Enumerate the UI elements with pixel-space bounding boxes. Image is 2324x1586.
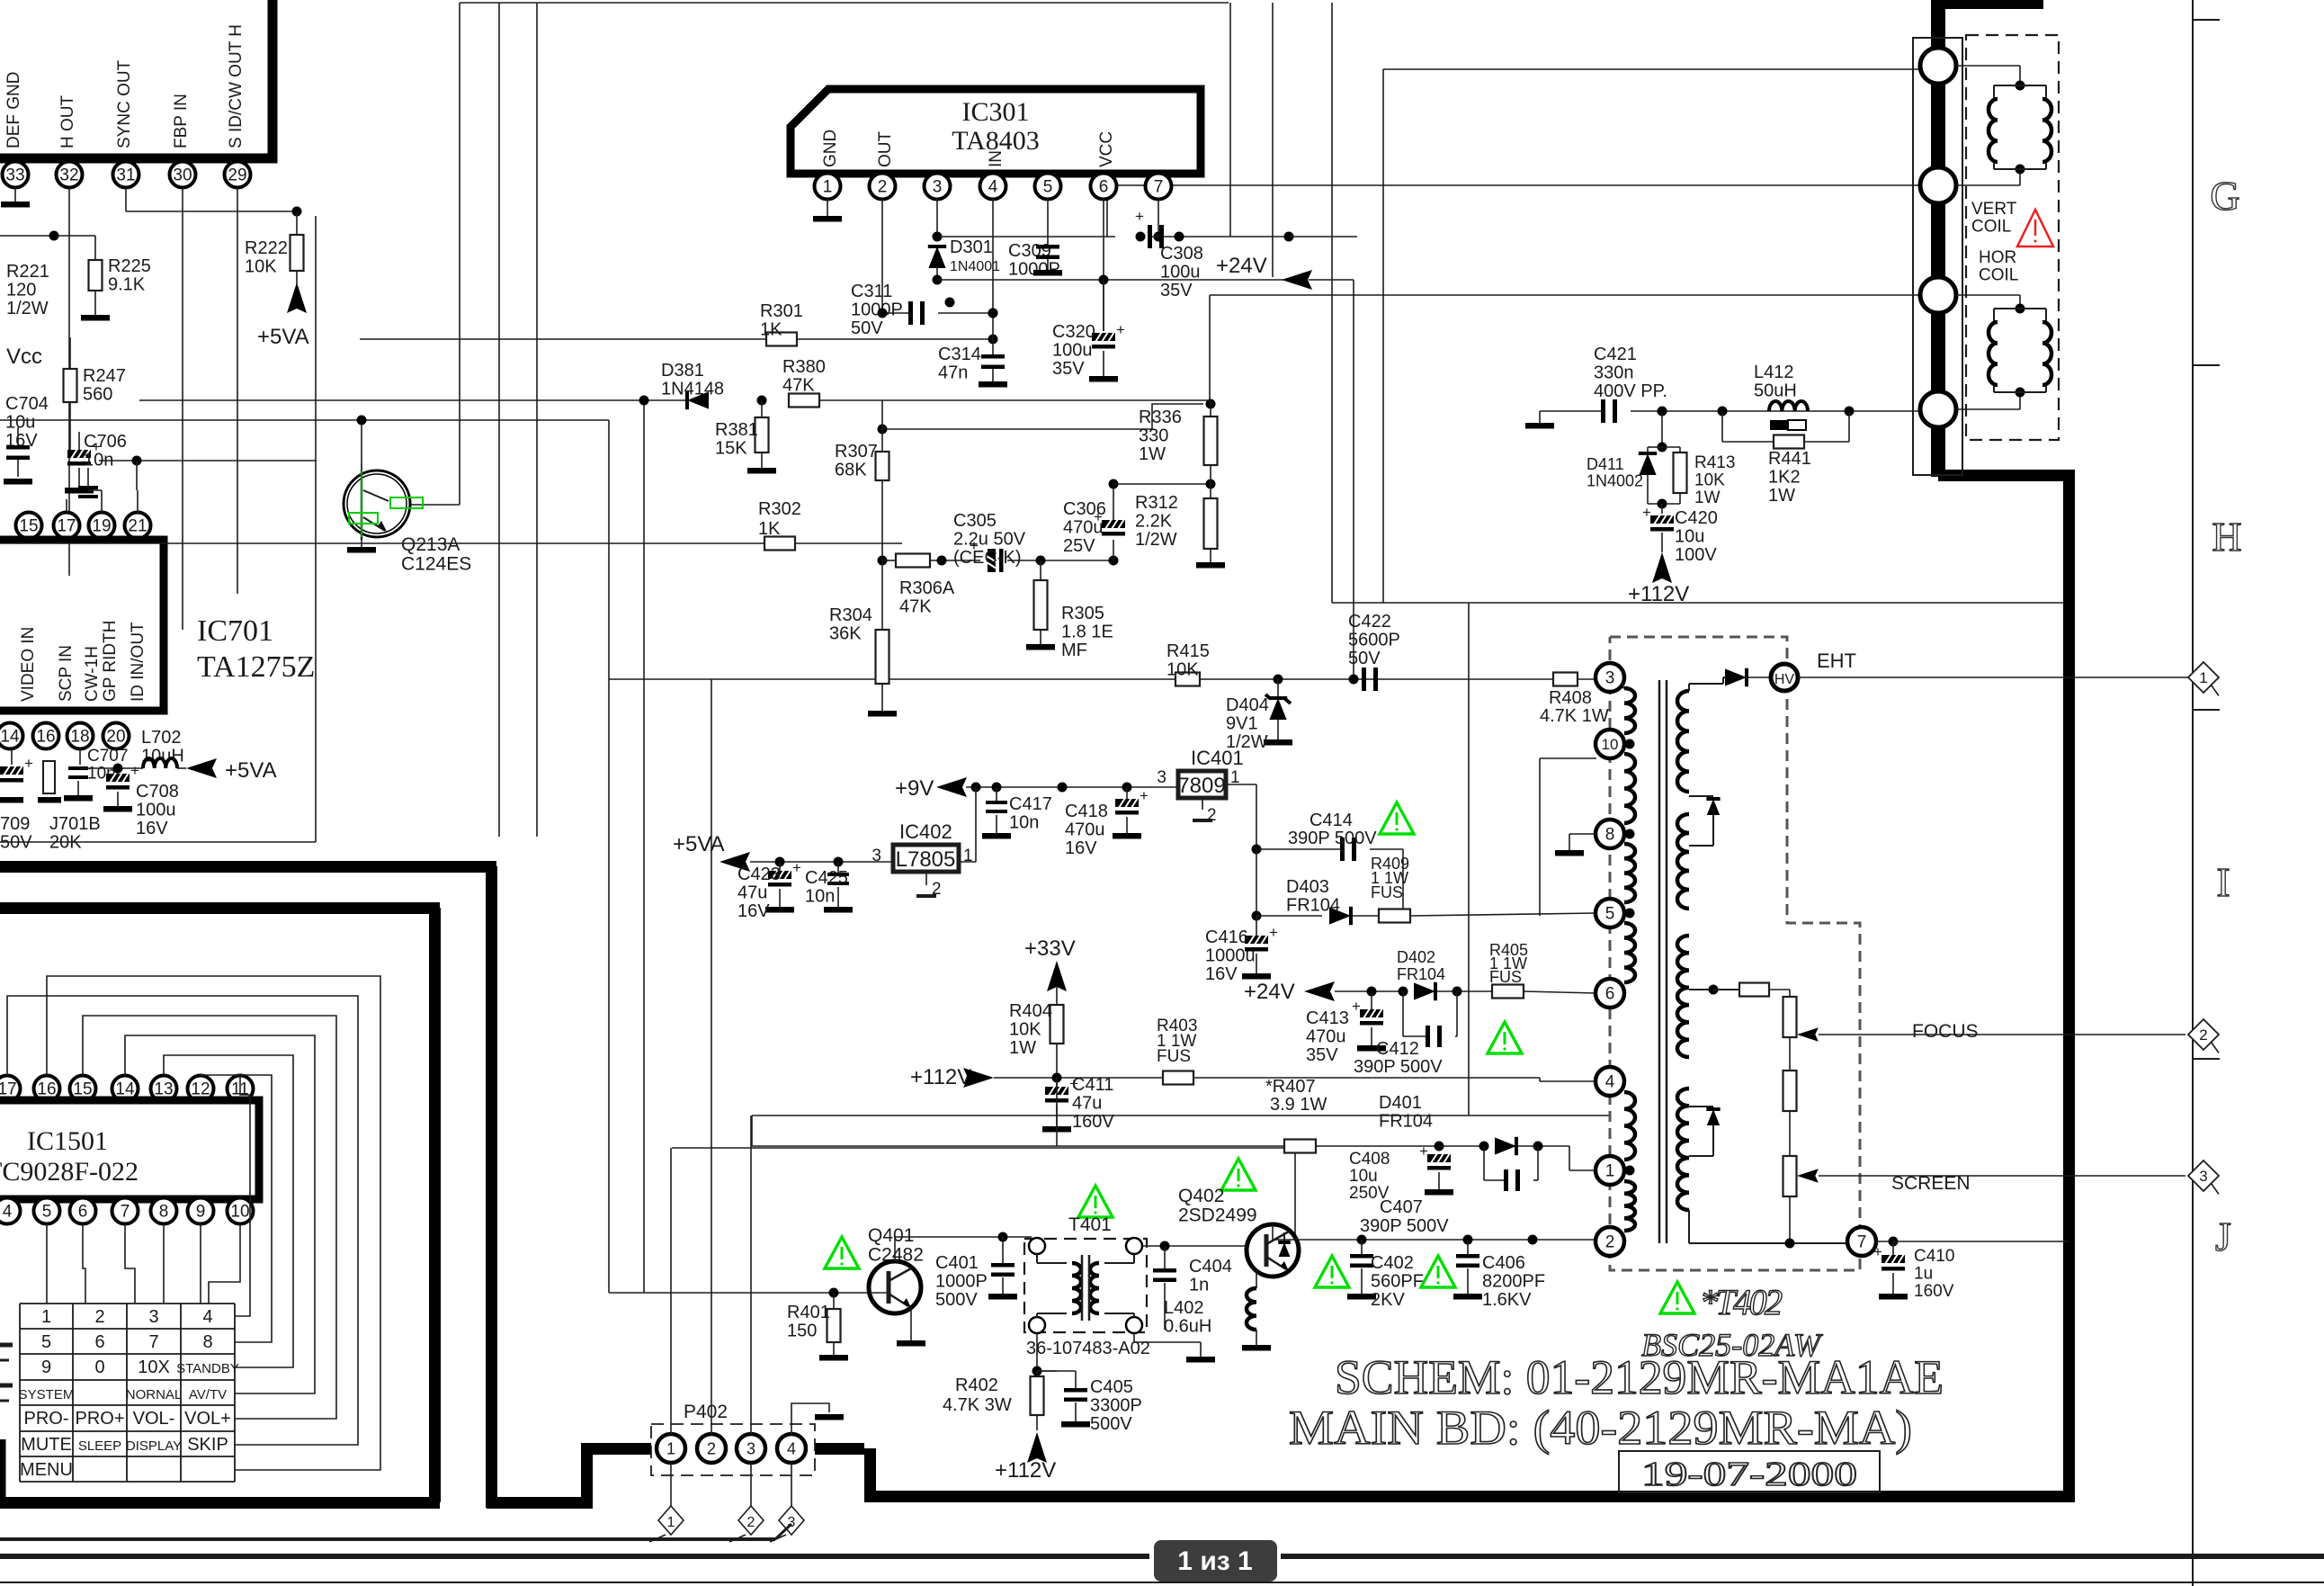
svg-text:7: 7	[1154, 178, 1164, 197]
svg-text:29: 29	[228, 166, 246, 185]
svg-text:+5VA: +5VA	[673, 832, 725, 856]
svg-text:R301: R301	[760, 301, 803, 321]
svg-text:R306A: R306A	[899, 578, 955, 598]
svg-text:C707: C707	[87, 747, 128, 766]
svg-text:16: 16	[36, 728, 55, 747]
svg-text:R225: R225	[108, 256, 151, 276]
svg-text:SYSTEM: SYSTEM	[19, 1387, 75, 1402]
svg-text:36K: 36K	[829, 623, 862, 643]
svg-text:160V: 160V	[1072, 1112, 1114, 1132]
svg-text:R304: R304	[829, 605, 872, 625]
svg-text:8200PF: 8200PF	[1482, 1271, 1545, 1291]
svg-text:D381: D381	[661, 361, 704, 381]
svg-text:1000P: 1000P	[1008, 259, 1060, 279]
svg-text:4: 4	[988, 178, 998, 197]
svg-text:150: 150	[787, 1321, 817, 1340]
svg-text:8: 8	[1605, 826, 1615, 845]
svg-text:68K: 68K	[835, 460, 867, 479]
svg-text:470u: 470u	[1306, 1026, 1346, 1046]
svg-text:330: 330	[1139, 426, 1168, 445]
svg-text:1N4148: 1N4148	[661, 379, 724, 399]
svg-text:47u: 47u	[737, 883, 767, 902]
svg-text:14: 14	[0, 728, 20, 747]
svg-text:C308: C308	[1160, 244, 1203, 264]
svg-text:R307: R307	[835, 442, 878, 461]
svg-text:3: 3	[933, 178, 943, 197]
svg-text:C708: C708	[136, 782, 179, 802]
svg-text:C405: C405	[1090, 1377, 1133, 1397]
svg-text:390P 500V: 390P 500V	[1360, 1216, 1449, 1236]
svg-text:FR104: FR104	[1397, 965, 1445, 983]
svg-text:R221: R221	[6, 262, 49, 282]
svg-text:3: 3	[788, 1515, 796, 1530]
svg-text:+33V: +33V	[1024, 936, 1076, 961]
svg-text:IC402: IC402	[899, 820, 952, 843]
svg-text:DEF GND: DEF GND	[4, 72, 23, 149]
svg-text:FR104: FR104	[1379, 1111, 1433, 1131]
svg-text:4: 4	[1605, 1073, 1615, 1092]
svg-text:PRO+: PRO+	[75, 1409, 124, 1429]
svg-text:IN: IN	[987, 150, 1006, 167]
svg-text:R302: R302	[758, 499, 801, 519]
svg-text:Vcc: Vcc	[6, 345, 42, 369]
svg-text:330n: 330n	[1594, 363, 1634, 382]
svg-text:Q401: Q401	[868, 1225, 914, 1246]
svg-text:4.7K 3W: 4.7K 3W	[943, 1395, 1012, 1415]
svg-text:390P 500V: 390P 500V	[1354, 1057, 1443, 1077]
svg-text:1000P: 1000P	[851, 300, 903, 319]
svg-text:7809: 7809	[1177, 774, 1225, 798]
svg-text:10u: 10u	[1675, 526, 1704, 546]
svg-text:CW-1H: CW-1H	[83, 646, 102, 702]
svg-text:EHT: EHT	[1817, 650, 1856, 672]
svg-text:5: 5	[1605, 905, 1615, 924]
svg-text:10X: 10X	[138, 1358, 170, 1377]
svg-text:19: 19	[92, 517, 111, 536]
svg-text:390P 500V: 390P 500V	[1288, 829, 1377, 848]
svg-text:2.2u 50V: 2.2u 50V	[953, 529, 1026, 549]
svg-text:VCC: VCC	[1097, 131, 1116, 167]
svg-text:C406: C406	[1482, 1253, 1525, 1273]
svg-text:470u: 470u	[1065, 820, 1105, 839]
svg-text:R381: R381	[715, 420, 758, 440]
svg-text:500V: 500V	[1090, 1414, 1132, 1434]
svg-text:47n: 47n	[938, 363, 968, 382]
svg-text:NORNAL: NORNAL	[126, 1387, 183, 1402]
svg-text:1K2: 1K2	[1768, 467, 1801, 487]
svg-text:VOL-: VOL-	[133, 1409, 175, 1429]
svg-text:R402: R402	[955, 1375, 998, 1395]
svg-text:1: 1	[666, 1439, 675, 1457]
svg-text:10n: 10n	[1009, 812, 1039, 832]
svg-text:1K: 1K	[760, 319, 782, 339]
svg-text:7: 7	[121, 1203, 130, 1222]
svg-text:1000u: 1000u	[1205, 945, 1256, 965]
svg-text:400V PP.: 400V PP.	[1594, 381, 1667, 401]
svg-text:I: I	[2216, 859, 2230, 905]
svg-text:50V: 50V	[0, 832, 32, 852]
svg-text:VERT: VERT	[1971, 200, 2017, 219]
svg-text:5600P: 5600P	[1348, 630, 1400, 650]
svg-text:FR104: FR104	[1286, 895, 1340, 915]
svg-text:35V: 35V	[1306, 1045, 1338, 1065]
svg-text:R408: R408	[1549, 688, 1592, 708]
svg-text:9.1K: 9.1K	[108, 274, 146, 294]
svg-text:D401: D401	[1379, 1093, 1422, 1113]
svg-text:100V: 100V	[1675, 545, 1717, 565]
svg-text:OUT: OUT	[876, 131, 895, 168]
svg-text:1W: 1W	[1009, 1038, 1036, 1058]
svg-text:C404: C404	[1189, 1257, 1232, 1277]
svg-text:1.8 1E: 1.8 1E	[1061, 622, 1113, 641]
svg-text:6: 6	[94, 1332, 104, 1352]
svg-text:R441: R441	[1768, 449, 1811, 469]
svg-text:470u: 470u	[1063, 517, 1104, 537]
svg-text:C425: C425	[805, 868, 848, 888]
svg-text:+24V: +24V	[1244, 980, 1295, 1004]
svg-text:16V: 16V	[1205, 964, 1238, 984]
svg-text:19-07-2000: 19-07-2000	[1641, 1456, 1857, 1493]
svg-text:+112V: +112V	[910, 1065, 971, 1089]
svg-text:FUS: FUS	[1157, 1047, 1191, 1066]
svg-text:C407: C407	[1380, 1197, 1423, 1217]
svg-text:G: G	[2210, 173, 2239, 219]
svg-text:C704: C704	[5, 394, 49, 414]
svg-text:1N4002: 1N4002	[1587, 471, 1643, 489]
svg-text:1: 1	[823, 178, 833, 197]
svg-text:D411: D411	[1587, 455, 1624, 473]
svg-text:MENU: MENU	[20, 1460, 73, 1480]
svg-text:J701B: J701B	[49, 814, 101, 834]
svg-text:+: +	[130, 762, 139, 779]
svg-text:2: 2	[878, 178, 888, 197]
svg-text:10: 10	[1602, 736, 1619, 753]
svg-text:+5VA: +5VA	[257, 325, 309, 349]
svg-text:5: 5	[42, 1203, 52, 1222]
svg-text:FBP IN: FBP IN	[172, 94, 191, 148]
svg-text:3: 3	[2199, 1168, 2207, 1185]
svg-text:6: 6	[78, 1203, 88, 1222]
svg-text:Q402: Q402	[1178, 1186, 1224, 1206]
svg-text:C124ES: C124ES	[401, 553, 471, 574]
svg-text:17: 17	[57, 517, 76, 536]
svg-text:9V1: 9V1	[1226, 713, 1258, 733]
svg-text:3.9 1W: 3.9 1W	[1270, 1095, 1327, 1115]
svg-text:C402: C402	[1371, 1253, 1414, 1273]
svg-text:1.6KV: 1.6KV	[1482, 1290, 1532, 1310]
svg-text:560: 560	[83, 384, 112, 404]
svg-text:C422: C422	[1348, 612, 1391, 632]
svg-text:4: 4	[202, 1307, 212, 1327]
svg-text:120: 120	[6, 280, 36, 300]
svg-text:Q213A: Q213A	[401, 534, 460, 555]
svg-text:1: 1	[667, 1515, 675, 1530]
svg-text:47K: 47K	[899, 596, 932, 616]
svg-text:+5VA: +5VA	[225, 758, 277, 783]
svg-text:+: +	[1642, 504, 1651, 521]
svg-text:35V: 35V	[1052, 359, 1085, 379]
svg-text:VOL+: VOL+	[184, 1409, 231, 1429]
svg-text:L7805: L7805	[896, 847, 956, 872]
svg-text:1W: 1W	[1139, 444, 1166, 464]
svg-text:1: 1	[1605, 1162, 1615, 1181]
svg-text:32: 32	[59, 166, 78, 185]
svg-text:C421: C421	[1594, 345, 1637, 364]
svg-text:C417: C417	[1009, 794, 1052, 814]
svg-text:+: +	[1873, 1243, 1882, 1260]
svg-text:+: +	[1135, 208, 1144, 225]
svg-text:STANDBY: STANDBY	[176, 1361, 239, 1376]
svg-text:4: 4	[787, 1439, 796, 1457]
svg-text:25V: 25V	[1063, 536, 1095, 556]
svg-text:C408: C408	[1349, 1150, 1390, 1169]
svg-text:50uH: 50uH	[1754, 381, 1797, 400]
svg-text:4.7K 1W: 4.7K 1W	[1540, 706, 1609, 726]
svg-text:20: 20	[106, 728, 125, 747]
svg-text:C314: C314	[938, 345, 981, 364]
svg-text:COIL: COIL	[1971, 217, 2011, 236]
svg-text:R401: R401	[787, 1303, 830, 1322]
svg-text:C416: C416	[1205, 927, 1248, 947]
svg-text:IC401: IC401	[1191, 747, 1244, 769]
svg-text:1 из 1: 1 из 1	[1177, 1546, 1252, 1576]
svg-text:C320: C320	[1052, 322, 1095, 342]
svg-text:MAIN BD: (40-2129MR-MA): MAIN BD: (40-2129MR-MA)	[1289, 1401, 1912, 1455]
svg-text:1n: 1n	[1189, 1275, 1209, 1295]
svg-text:GND: GND	[821, 130, 840, 167]
svg-text:SYNC OUT: SYNC OUT	[115, 59, 134, 148]
svg-text:33: 33	[5, 166, 24, 185]
svg-text:8: 8	[202, 1332, 212, 1352]
svg-text:+: +	[792, 859, 801, 876]
svg-text:3: 3	[1605, 669, 1615, 688]
svg-text:10K: 10K	[1166, 659, 1199, 679]
svg-text:R404: R404	[1009, 1001, 1052, 1021]
svg-text:1000P: 1000P	[935, 1271, 988, 1291]
svg-text:SCREEN: SCREEN	[1891, 1173, 1971, 1194]
svg-text:C412: C412	[1376, 1039, 1419, 1059]
svg-text:(CEC-K): (CEC-K)	[953, 548, 1022, 568]
svg-text:FOCUS: FOCUS	[1912, 1021, 1979, 1042]
svg-text:10K: 10K	[1009, 1019, 1041, 1039]
svg-text:100u: 100u	[1052, 340, 1093, 360]
svg-text:R222: R222	[245, 238, 288, 258]
svg-text:SCP IN: SCP IN	[57, 645, 76, 702]
svg-text:560PF: 560PF	[1371, 1271, 1424, 1291]
svg-text:6: 6	[1099, 178, 1109, 197]
svg-text:L412: L412	[1754, 363, 1794, 382]
svg-text:10u: 10u	[1349, 1167, 1378, 1186]
svg-text:+: +	[1116, 321, 1125, 338]
svg-text:C311: C311	[851, 282, 892, 301]
svg-text:+24V: +24V	[1216, 254, 1267, 278]
svg-text:15: 15	[19, 517, 38, 536]
svg-text:3: 3	[1157, 768, 1166, 787]
svg-text:PRO-: PRO-	[24, 1409, 69, 1429]
svg-text:50V: 50V	[1348, 649, 1381, 668]
svg-text:709: 709	[0, 814, 30, 834]
svg-text:18: 18	[70, 728, 89, 747]
svg-text:+: +	[1140, 787, 1149, 804]
svg-text:16V: 16V	[136, 819, 168, 838]
svg-text:4: 4	[3, 1203, 13, 1222]
svg-text:C401: C401	[935, 1253, 979, 1273]
svg-text:47u: 47u	[1072, 1093, 1102, 1113]
svg-text:*R407: *R407	[1265, 1077, 1316, 1097]
svg-text:1W: 1W	[1768, 486, 1795, 506]
svg-text:TC9028F-022: TC9028F-022	[0, 1157, 139, 1187]
svg-text:2.2K: 2.2K	[1135, 511, 1173, 531]
svg-text:1W: 1W	[1694, 488, 1721, 507]
svg-text:D404: D404	[1226, 695, 1269, 715]
svg-text:9: 9	[196, 1203, 206, 1222]
svg-text:MF: MF	[1061, 641, 1087, 660]
svg-text:3: 3	[871, 847, 881, 865]
svg-text:HV: HV	[1774, 672, 1795, 687]
svg-text:10n: 10n	[805, 886, 835, 906]
svg-text:5: 5	[1043, 178, 1053, 197]
svg-text:D402: D402	[1397, 948, 1435, 966]
svg-text:3: 3	[746, 1439, 755, 1457]
svg-text:100u: 100u	[1160, 262, 1201, 282]
svg-text:2: 2	[707, 1439, 716, 1457]
svg-text:C414: C414	[1309, 811, 1353, 830]
svg-text:10K: 10K	[1694, 470, 1725, 489]
svg-text:2: 2	[1605, 1233, 1615, 1252]
svg-text:R247: R247	[83, 366, 126, 386]
svg-text:1: 1	[41, 1307, 51, 1327]
svg-text:10: 10	[230, 1203, 249, 1222]
svg-text:6: 6	[1605, 985, 1615, 1004]
svg-text:30: 30	[173, 166, 192, 185]
svg-text:10u: 10u	[5, 412, 35, 432]
svg-text:2KV: 2KV	[1371, 1290, 1405, 1310]
svg-text:20K: 20K	[49, 832, 82, 852]
svg-text:2: 2	[747, 1515, 755, 1530]
svg-text:C420: C420	[1675, 508, 1718, 528]
svg-text:R336: R336	[1139, 408, 1182, 427]
svg-text:31: 31	[116, 166, 135, 185]
svg-text:+112V: +112V	[1628, 582, 1689, 606]
svg-text:C706: C706	[84, 432, 127, 452]
svg-text:*T402: *T402	[1700, 1282, 1783, 1322]
svg-text:SCHEM: 01-2129MR-MA1AE: SCHEM: 01-2129MR-MA1AE	[1335, 1350, 1944, 1404]
svg-text:C413: C413	[1306, 1008, 1349, 1028]
svg-text:ID IN/OUT: ID IN/OUT	[129, 622, 147, 702]
svg-text:10K: 10K	[245, 256, 277, 276]
svg-text:R380: R380	[782, 357, 826, 377]
svg-text:P402: P402	[684, 1402, 728, 1422]
svg-text:SKIP: SKIP	[187, 1435, 228, 1455]
svg-text:35V: 35V	[1160, 281, 1193, 300]
svg-text:VIDEO IN: VIDEO IN	[19, 627, 38, 702]
svg-text:S ID/CW OUT H: S ID/CW OUT H	[227, 24, 246, 148]
svg-text:2: 2	[94, 1307, 104, 1327]
svg-text:C306: C306	[1063, 499, 1106, 519]
svg-text:1K: 1K	[758, 519, 781, 539]
svg-text:C423: C423	[737, 865, 781, 884]
svg-text:IC701: IC701	[197, 614, 273, 648]
svg-text:+: +	[24, 755, 33, 772]
svg-text:0: 0	[94, 1358, 104, 1377]
svg-text:J: J	[2215, 1214, 2231, 1259]
svg-text:L402: L402	[1164, 1298, 1204, 1318]
svg-text:+112V: +112V	[995, 1458, 1056, 1483]
svg-text:160V: 160V	[1914, 1282, 1954, 1301]
svg-text:9: 9	[41, 1358, 51, 1377]
svg-text:IC301: IC301	[962, 97, 1030, 127]
svg-text:AV/TV: AV/TV	[189, 1387, 227, 1402]
svg-text:+: +	[1419, 1142, 1428, 1160]
svg-text:3300P: 3300P	[1090, 1395, 1142, 1415]
svg-text:2SD2499: 2SD2499	[1178, 1205, 1257, 1225]
svg-text:L702: L702	[141, 728, 182, 748]
svg-text:1u: 1u	[1914, 1264, 1933, 1283]
svg-text:D301: D301	[950, 237, 993, 257]
svg-text:1: 1	[963, 847, 973, 865]
svg-text:36-107483-A02: 36-107483-A02	[1026, 1339, 1150, 1358]
svg-text:2: 2	[2199, 1026, 2207, 1044]
svg-text:+: +	[1352, 998, 1361, 1015]
svg-text:15K: 15K	[715, 438, 747, 458]
svg-text:+: +	[1269, 924, 1278, 941]
svg-text:SLEEP: SLEEP	[78, 1438, 121, 1454]
svg-text:MUTE: MUTE	[21, 1435, 72, 1455]
svg-text:T401: T401	[1068, 1214, 1112, 1235]
svg-text:0.6uH: 0.6uH	[1164, 1316, 1211, 1336]
svg-text:+9V: +9V	[895, 776, 934, 801]
svg-text:C411: C411	[1072, 1075, 1113, 1095]
svg-text:IC1501: IC1501	[27, 1126, 108, 1156]
svg-text:8: 8	[159, 1203, 169, 1222]
svg-text:16V: 16V	[737, 901, 770, 921]
svg-text:HOR: HOR	[1979, 248, 2016, 267]
svg-text:7: 7	[148, 1332, 158, 1352]
svg-text:D403: D403	[1286, 877, 1329, 897]
svg-text:1/2W: 1/2W	[1135, 530, 1177, 550]
svg-text:47K: 47K	[782, 375, 815, 395]
svg-text:DISPLAY: DISPLAY	[126, 1438, 182, 1454]
svg-text:7: 7	[1857, 1233, 1867, 1252]
svg-text:50V: 50V	[851, 318, 883, 338]
svg-text:16V: 16V	[1065, 838, 1097, 858]
svg-text:C410: C410	[1914, 1247, 1954, 1266]
svg-text:1N4001: 1N4001	[950, 259, 1000, 274]
svg-text:C418: C418	[1065, 802, 1108, 821]
svg-text:21: 21	[128, 517, 147, 536]
svg-text:500V: 500V	[935, 1290, 978, 1310]
svg-text:R312: R312	[1135, 493, 1178, 513]
svg-text:TA1275Z: TA1275Z	[197, 650, 315, 684]
svg-text:H OUT: H OUT	[58, 95, 77, 149]
svg-text:COIL: COIL	[1979, 265, 2018, 284]
svg-text:C305: C305	[953, 511, 997, 531]
svg-text:R415: R415	[1166, 641, 1210, 661]
svg-text:R305: R305	[1061, 604, 1104, 623]
svg-text:FUS: FUS	[1371, 883, 1403, 901]
svg-text:3: 3	[148, 1307, 158, 1327]
svg-text:R413: R413	[1694, 453, 1735, 472]
svg-text:H: H	[2212, 514, 2241, 560]
svg-text:5: 5	[41, 1332, 51, 1352]
svg-text:1: 1	[2199, 669, 2207, 686]
svg-text:GP RIDTH: GP RIDTH	[101, 621, 120, 702]
svg-text:1/2W: 1/2W	[6, 299, 49, 318]
svg-text:100u: 100u	[136, 800, 176, 820]
svg-text:FUS: FUS	[1489, 968, 1522, 986]
